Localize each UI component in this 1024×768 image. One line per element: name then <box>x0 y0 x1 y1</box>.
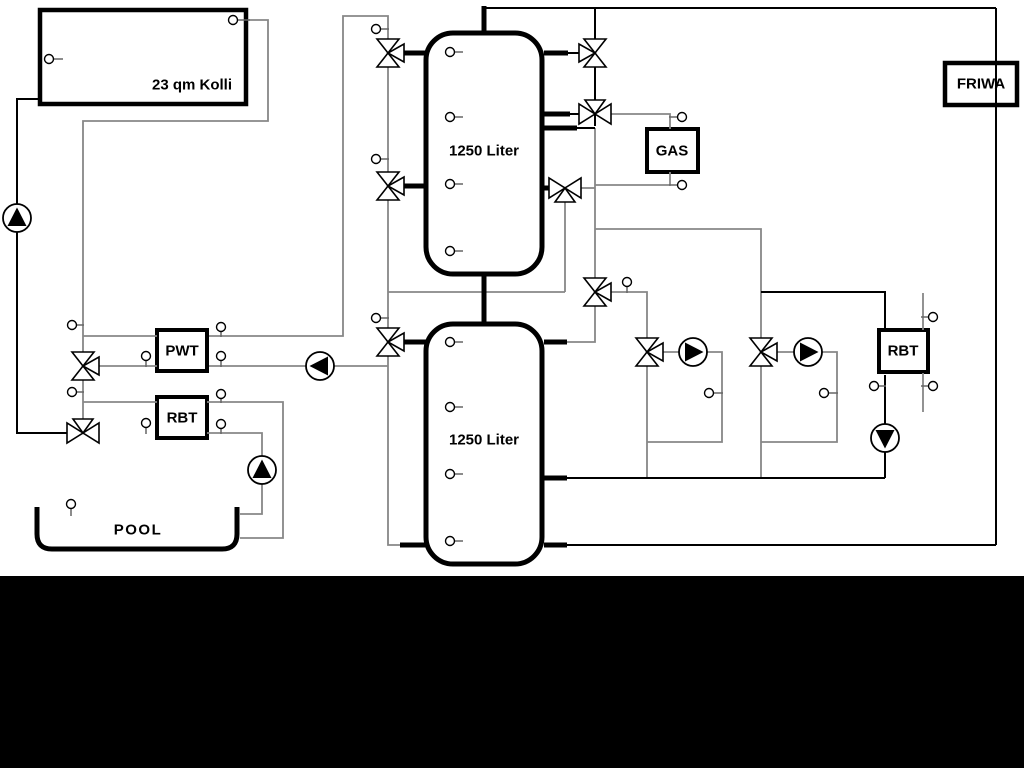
valve-heating-circuit-1-icon <box>636 338 663 366</box>
temp-sensor-icon <box>217 323 226 338</box>
heating-pump-2-icon <box>794 338 822 366</box>
pool-label: POOL <box>114 522 163 539</box>
rbt-left-label: RBT <box>167 410 198 427</box>
footer-bar <box>0 576 1024 768</box>
pipe-gas-flow <box>611 114 670 129</box>
temp-sensor-icon <box>623 278 632 294</box>
valve-solar-pool-icon <box>67 419 99 443</box>
friwa-label: FRIWA <box>957 76 1005 93</box>
temp-sensor-icon <box>142 352 151 368</box>
pipe-tank-right-drop <box>567 128 595 342</box>
pipe-rbt-right-feed <box>761 292 885 330</box>
valve-heating-supply-icon <box>584 278 611 306</box>
temp-sensor-icon <box>372 25 390 34</box>
temp-sensor-icon <box>68 388 85 397</box>
valve-buffer2-left-icon <box>377 328 404 356</box>
temp-sensor-icon <box>372 314 390 323</box>
pipe-circuit1-supply <box>611 292 647 478</box>
pipe-circuit2-supply <box>595 229 761 478</box>
rbt-pump-icon <box>871 424 899 452</box>
pwt-pump-icon <box>306 352 334 380</box>
solar-pump-icon <box>3 204 31 232</box>
valve-heating-circuit-2-icon <box>750 338 777 366</box>
tank-bottom-label: 1250 Liter <box>449 432 519 449</box>
valve-buffer1-left-mid-icon <box>377 172 404 200</box>
temp-sensor-icon <box>669 113 687 122</box>
heating-pump-1-icon <box>679 338 707 366</box>
tank-top-label: 1250 Liter <box>449 143 519 160</box>
valve-buffer1-left-top-icon <box>377 39 404 67</box>
temp-sensor-icon <box>870 382 887 391</box>
valve-buffer1-right-top-icon <box>579 39 606 67</box>
valve-buffer1-right-mid-icon <box>549 178 581 202</box>
pool-pump-icon <box>248 456 276 484</box>
temp-sensor-icon <box>669 181 687 190</box>
collector-label: 23 qm Kolli <box>152 77 232 94</box>
temp-sensor-icon <box>217 352 226 368</box>
pipe-collector-return <box>17 99 67 433</box>
diagram-stage: 23 qm Kolli 1250 Liter 1250 Liter PWT RB… <box>0 0 1024 768</box>
temp-sensor-icon <box>820 389 839 398</box>
gas-label: GAS <box>656 143 689 160</box>
valve-solar-pwt-icon <box>72 352 99 380</box>
temp-sensor-icon <box>217 390 226 404</box>
temp-sensor-icon <box>372 155 390 164</box>
temp-sensor-icon <box>705 389 724 398</box>
temp-sensor-icon <box>217 420 226 435</box>
temp-sensor-icon <box>67 500 76 517</box>
rbt-right-label: RBT <box>888 343 919 360</box>
temp-sensor-icon <box>68 321 85 330</box>
temp-sensor-icon <box>142 419 151 435</box>
pwt-label: PWT <box>165 343 198 360</box>
